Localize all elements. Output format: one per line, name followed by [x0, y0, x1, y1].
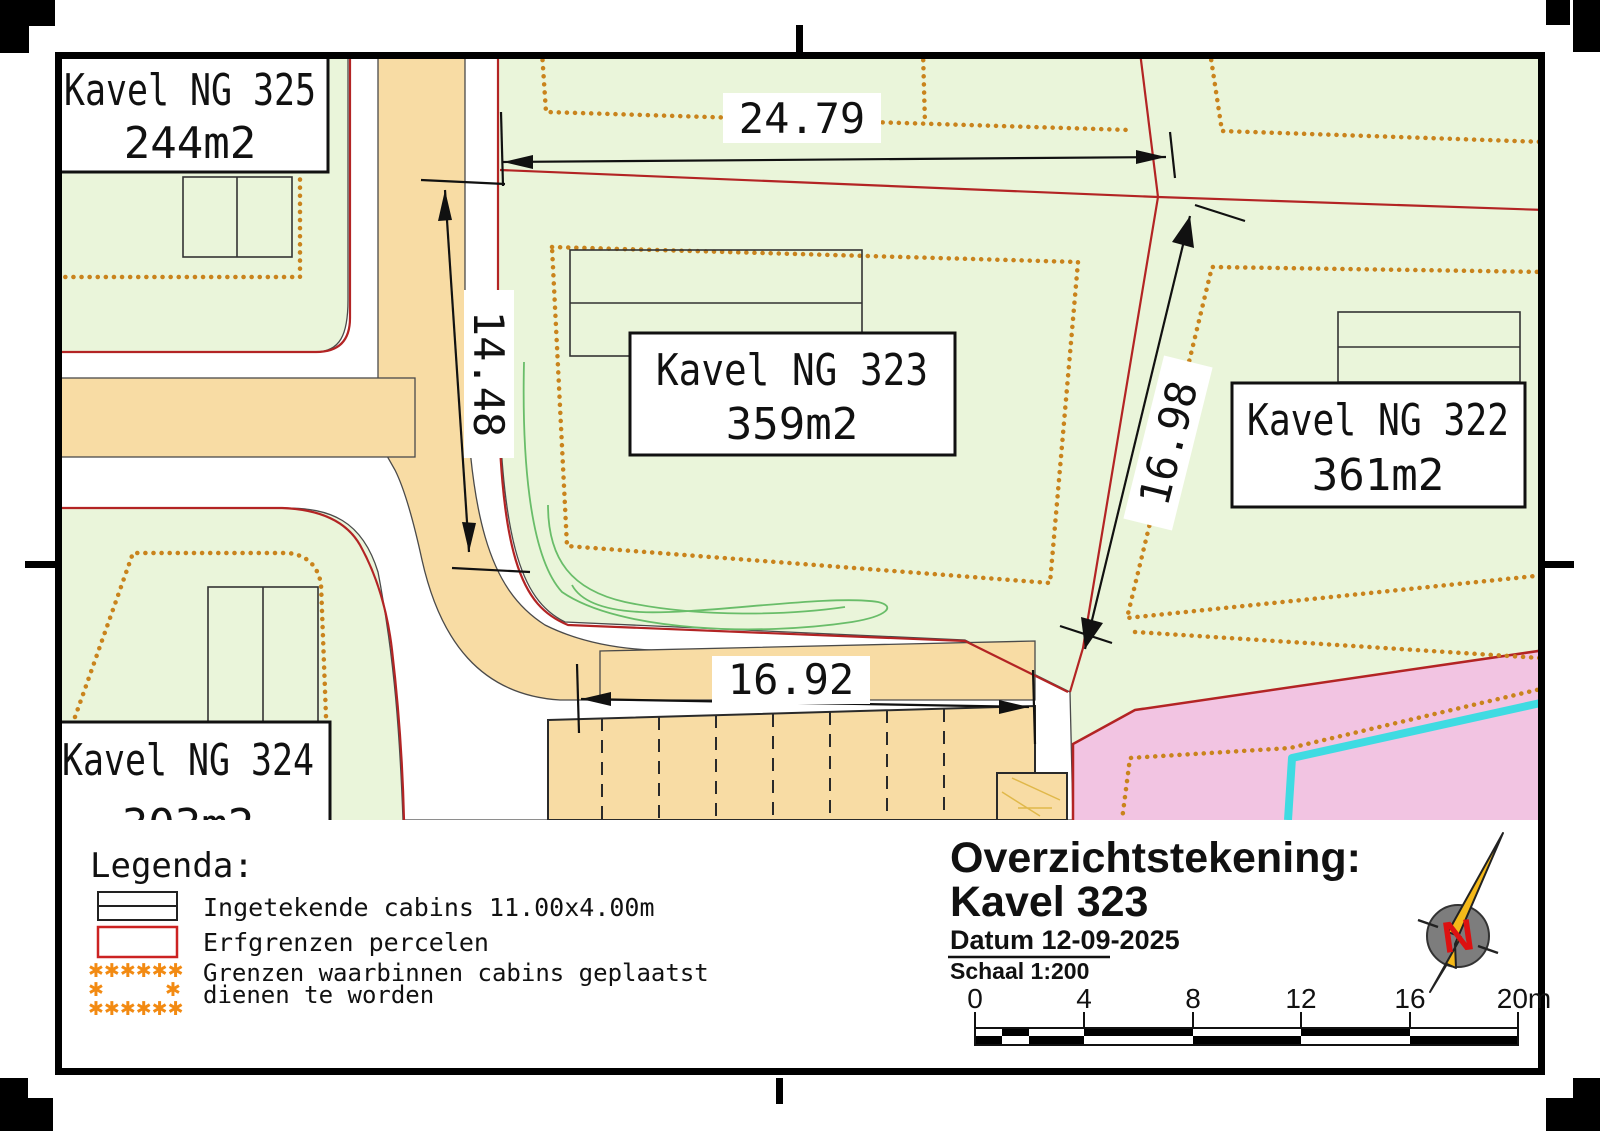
- drawing-date: Datum 12-09-2025: [950, 925, 1180, 955]
- parking-area: [548, 706, 1035, 820]
- legend-symbol-cabin-zone: ✱✱✱✱✱✱ ✱ ✱ ✱✱✱✱✱✱: [88, 960, 184, 1020]
- dim-24-79: 24.79: [739, 94, 865, 143]
- scale-bar-blocks: [975, 1028, 1518, 1045]
- scale-tick-12: 12: [1285, 983, 1316, 1014]
- plot-area: 303m2: [122, 800, 254, 851]
- scale-tick-0: 0: [967, 983, 983, 1014]
- legend-label-boundary: Erfgrenzen percelen: [203, 928, 489, 957]
- star-row-bottom: ✱✱✱✱✱✱: [88, 998, 184, 1020]
- road-west: [55, 378, 415, 457]
- scale-tick-16: 16: [1394, 983, 1425, 1014]
- plot-name: Kavel NG 323: [656, 345, 928, 396]
- plot-label-ng325: Kavel NG 325 244m2: [52, 53, 328, 172]
- plot-area: 359m2: [726, 399, 858, 450]
- scale-bar-ticks: [975, 1012, 1518, 1028]
- scale-tick-4: 4: [1076, 983, 1092, 1014]
- plot-name: Kavel NG 324: [62, 735, 314, 786]
- plot-label-ng324: Kavel NG 324 303m2: [46, 722, 330, 852]
- legend-label-zone-2: dienen te worden: [203, 981, 434, 1009]
- plan-sheet: 24.79 14.48 16.98 16.92 Kavel NG 325 244…: [0, 0, 1600, 1131]
- drawing-scale: Schaal 1:200: [950, 958, 1089, 984]
- drawing-title-line1: Overzichtstekening:: [950, 834, 1361, 882]
- plot-name: Kavel NG 322: [1247, 395, 1509, 446]
- legend-symbol-boundary: [98, 927, 177, 957]
- north-letter: N: [1439, 910, 1477, 963]
- scale-tick-20m: 20m: [1497, 983, 1551, 1014]
- plot-label-ng322: Kavel NG 322 361m2: [1232, 383, 1525, 507]
- site-plan-canvas: 24.79 14.48 16.98 16.92 Kavel NG 325 244…: [0, 0, 1600, 1131]
- map-drawing: 24.79 14.48 16.98 16.92 Kavel NG 325 244…: [46, 52, 1545, 852]
- plot-area: 361m2: [1312, 450, 1444, 501]
- legend-symbol-cabin: [98, 892, 177, 920]
- scale-bar-labels: 0 4 8 12 16 20m: [967, 983, 1551, 1014]
- parcel-fragment: [997, 773, 1067, 820]
- legend-title: Legenda:: [90, 846, 254, 886]
- plot-label-ng323: Kavel NG 323 359m2: [630, 333, 955, 455]
- dim-16-92: 16.92: [728, 655, 854, 704]
- scale-bar: 0 4 8 12 16 20m: [967, 983, 1551, 1045]
- dim-14-48: 14.48: [464, 311, 513, 437]
- plot-name: Kavel NG 325: [64, 65, 316, 116]
- legend: Legenda: Ingetekende cabins 11.00x4.00m …: [88, 846, 709, 1020]
- plot-area: 244m2: [124, 118, 256, 169]
- title-block: Overzichtstekening: Kavel 323 Datum 12-0…: [948, 834, 1361, 984]
- scale-tick-8: 8: [1185, 983, 1201, 1014]
- drawing-title-line2: Kavel 323: [950, 878, 1148, 926]
- north-arrow: N: [1418, 833, 1503, 992]
- legend-label-cabins: Ingetekende cabins 11.00x4.00m: [203, 893, 655, 922]
